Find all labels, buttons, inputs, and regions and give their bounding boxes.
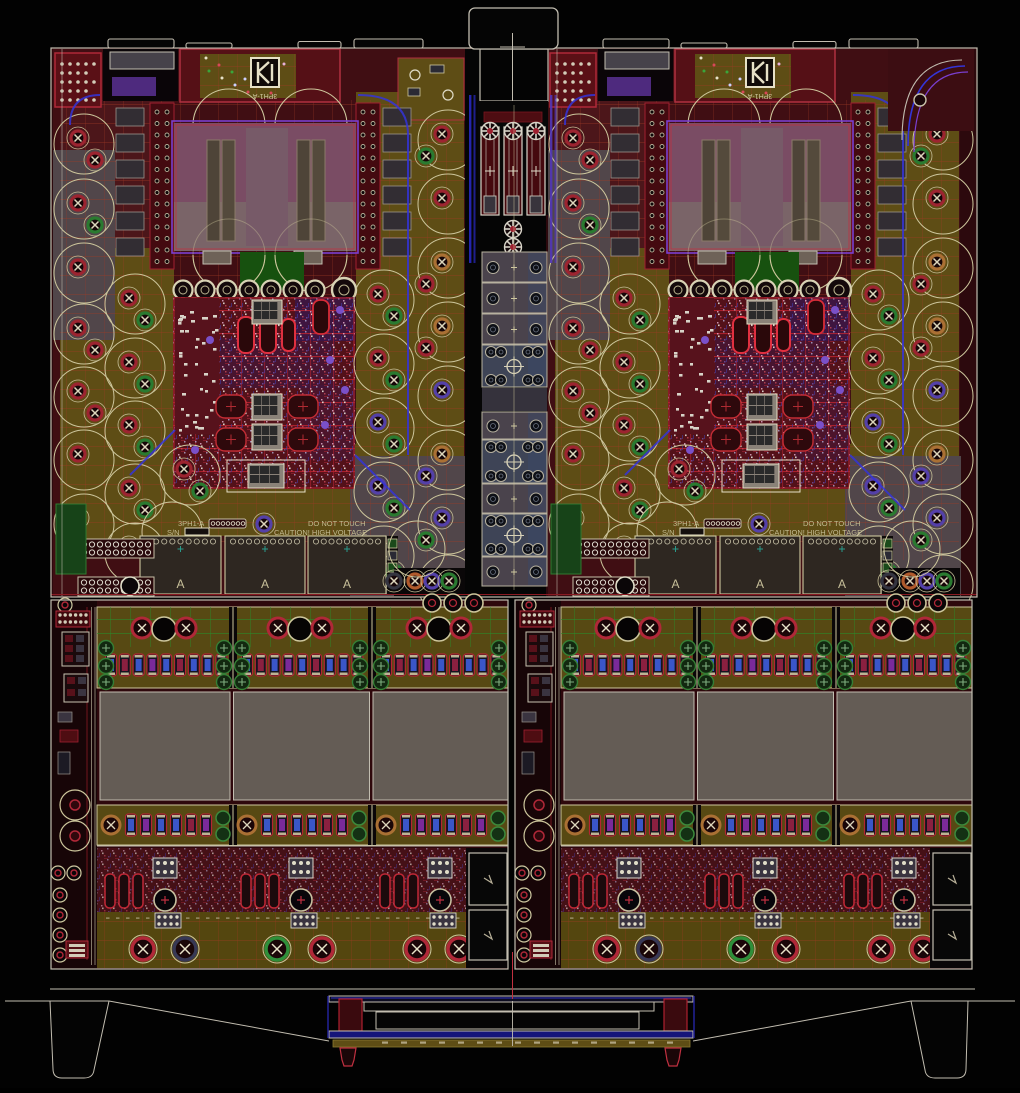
svg-text:3PH1-A: 3PH1-A	[747, 92, 772, 99]
svg-text:A: A	[756, 577, 764, 591]
svg-text:A: A	[671, 577, 679, 591]
svg-text:A: A	[176, 577, 184, 591]
svg-text:A: A	[343, 577, 351, 591]
svg-text:A: A	[838, 577, 846, 591]
svg-text:3PH1-A: 3PH1-A	[178, 519, 204, 528]
svg-text:DO NOT TOUCH: DO NOT TOUCH	[308, 519, 366, 528]
svg-text:3PH1-A: 3PH1-A	[673, 519, 699, 528]
svg-text:DO NOT TOUCH: DO NOT TOUCH	[803, 519, 861, 528]
svg-text:A: A	[261, 577, 269, 591]
svg-text:3PH1-A: 3PH1-A	[252, 92, 277, 99]
